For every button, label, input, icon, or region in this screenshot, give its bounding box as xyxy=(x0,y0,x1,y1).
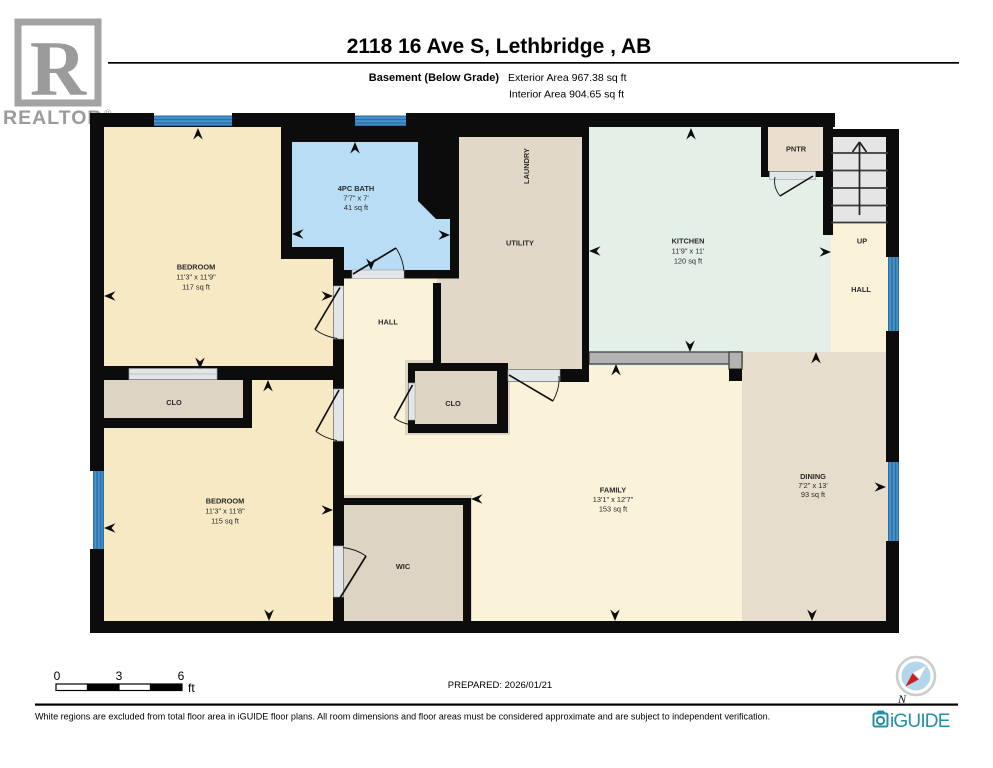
svg-text:PNTR: PNTR xyxy=(786,145,807,154)
svg-text:ft: ft xyxy=(188,681,195,695)
svg-text:WIC: WIC xyxy=(396,562,411,571)
svg-text:41 sq ft: 41 sq ft xyxy=(344,203,368,212)
svg-text:PREPARED: 2026/01/21: PREPARED: 2026/01/21 xyxy=(448,680,552,691)
svg-text:HALL: HALL xyxy=(378,318,398,327)
svg-text:Exterior Area 967.38 sq ft: Exterior Area 967.38 sq ft xyxy=(508,72,627,84)
svg-text:White regions are excluded fro: White regions are excluded from total fl… xyxy=(35,712,770,722)
svg-text:7'2" x 13': 7'2" x 13' xyxy=(798,481,828,490)
svg-text:R: R xyxy=(30,25,88,112)
svg-text:13'1" x 12'7": 13'1" x 12'7" xyxy=(593,495,634,504)
svg-text:Interior Area 904.65 sq ft: Interior Area 904.65 sq ft xyxy=(509,89,624,101)
svg-text:3: 3 xyxy=(116,669,123,683)
svg-text:120 sq ft: 120 sq ft xyxy=(674,257,702,266)
svg-text:CLO: CLO xyxy=(445,399,461,408)
svg-text:Basement (Below Grade): Basement (Below Grade) xyxy=(369,72,500,84)
svg-text:153 sq ft: 153 sq ft xyxy=(599,505,627,514)
svg-text:11'3" x 11'9": 11'3" x 11'9" xyxy=(176,273,216,282)
svg-text:CLO: CLO xyxy=(166,398,182,407)
svg-text:117 sq ft: 117 sq ft xyxy=(182,283,210,292)
svg-text:HALL: HALL xyxy=(851,285,871,294)
svg-text:11'9" x 11': 11'9" x 11' xyxy=(672,247,705,256)
svg-text:LAUNDRY: LAUNDRY xyxy=(522,148,531,184)
svg-text:11'3" x 11'8": 11'3" x 11'8" xyxy=(205,507,245,516)
svg-text:93 sq ft: 93 sq ft xyxy=(801,490,825,499)
svg-text:UTILITY: UTILITY xyxy=(506,239,534,248)
svg-text:iGUIDE: iGUIDE xyxy=(890,711,950,732)
svg-text:2118 16 Ave S, Lethbridge , AB: 2118 16 Ave S, Lethbridge , AB xyxy=(347,35,652,58)
svg-text:UP: UP xyxy=(857,237,867,246)
svg-text:DINING: DINING xyxy=(800,472,826,481)
svg-text:7'7" x 7': 7'7" x 7' xyxy=(343,194,369,203)
svg-text:4PC BATH: 4PC BATH xyxy=(338,184,374,193)
svg-text:KITCHEN: KITCHEN xyxy=(672,237,705,246)
svg-text:REALTOR: REALTOR xyxy=(3,107,102,129)
svg-text:0: 0 xyxy=(54,669,61,683)
svg-text:115 sq ft: 115 sq ft xyxy=(211,517,239,526)
svg-text:6: 6 xyxy=(178,669,185,683)
svg-text:BEDROOM: BEDROOM xyxy=(206,497,245,506)
svg-text:FAMILY: FAMILY xyxy=(600,486,626,495)
svg-text:BEDROOM: BEDROOM xyxy=(177,263,216,272)
